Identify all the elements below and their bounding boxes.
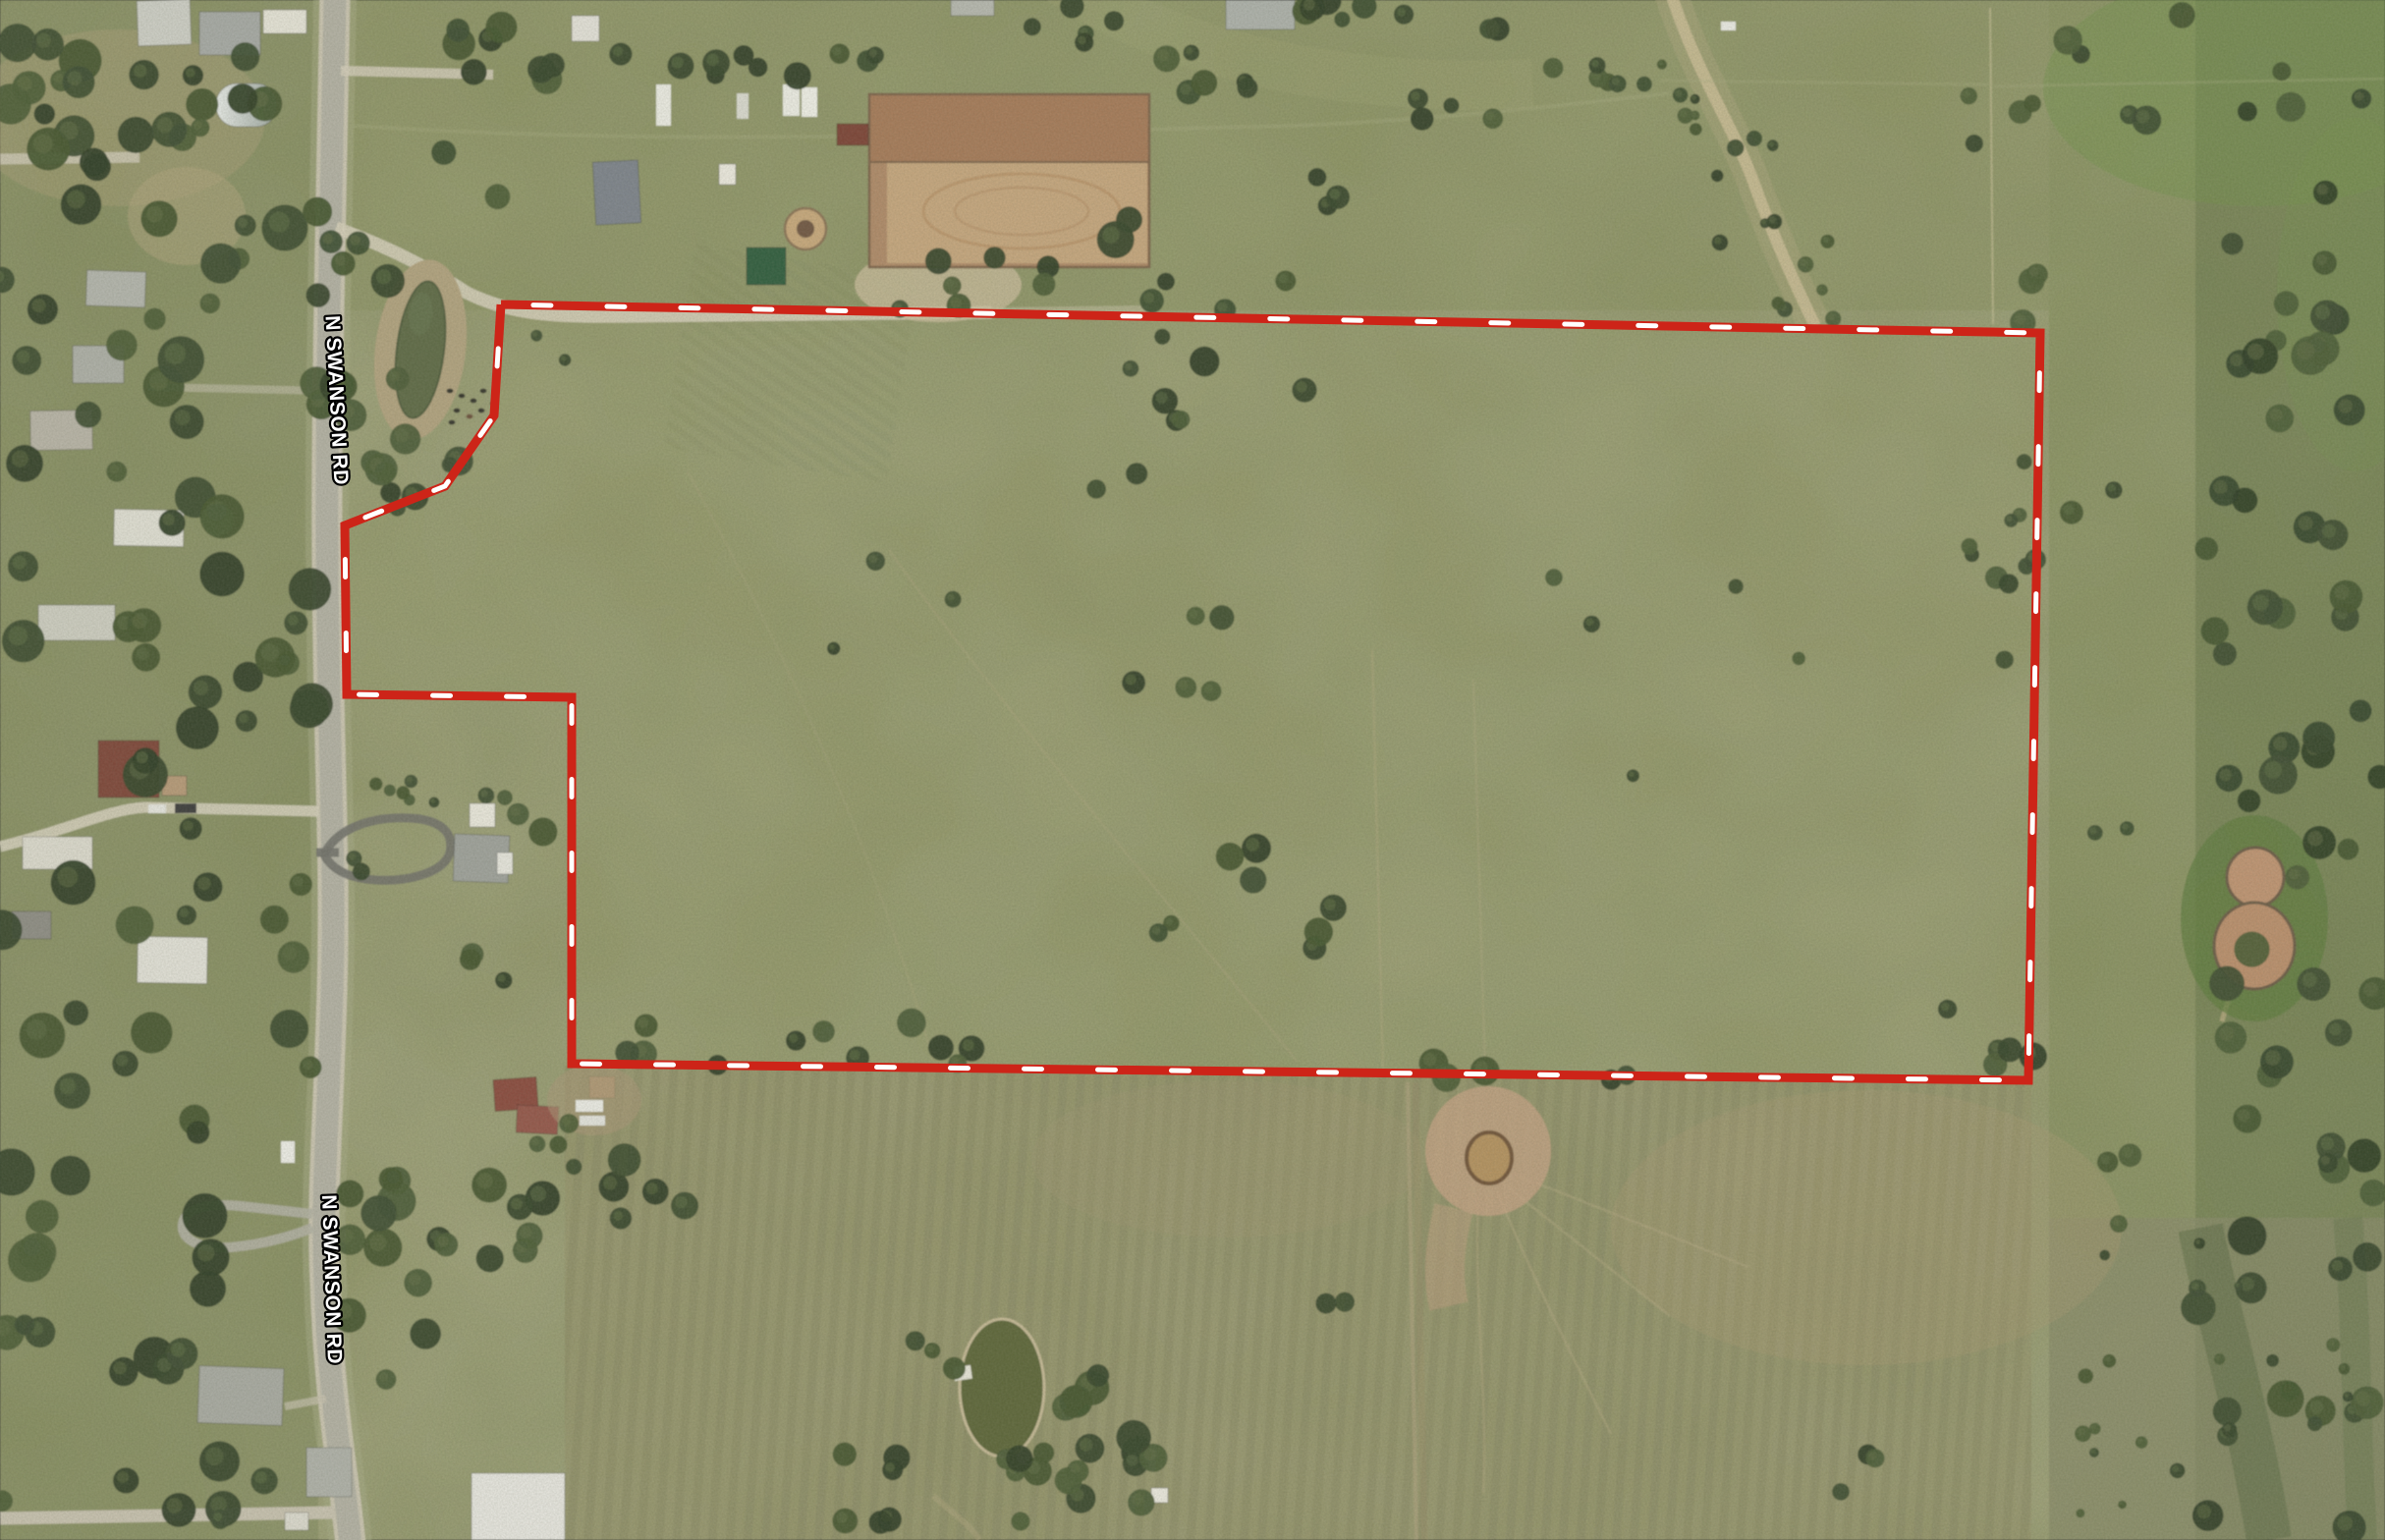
- photo-grain-light: [0, 0, 2385, 1540]
- aerial-imagery: N SWANSON RD N SWANSON RD: [0, 0, 2385, 1540]
- satellite-property-map: N SWANSON RD N SWANSON RD: [0, 0, 2385, 1540]
